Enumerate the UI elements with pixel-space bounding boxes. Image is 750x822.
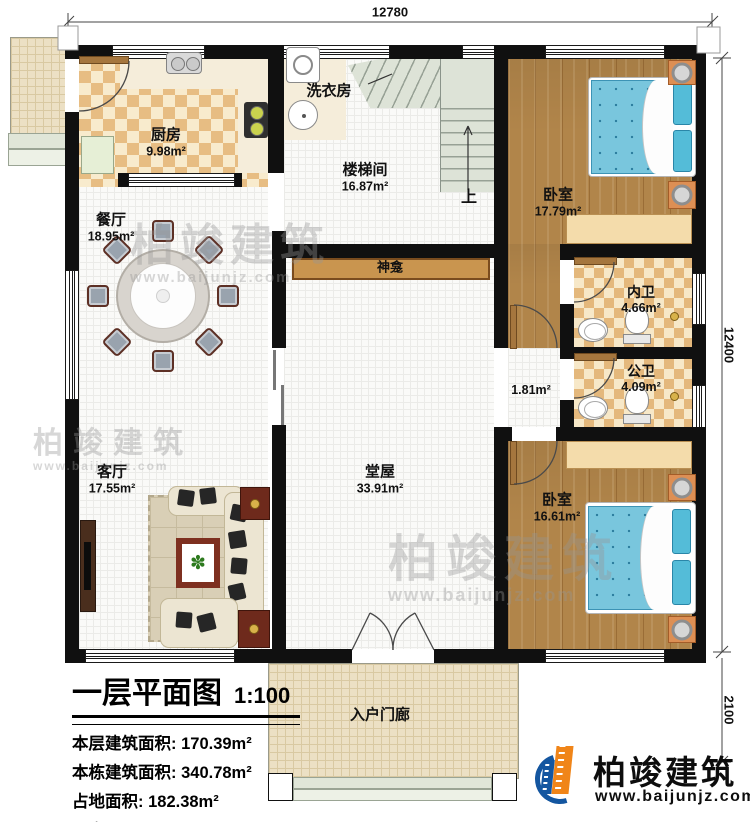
dim-value: 12400 [721, 327, 736, 363]
company-name: 柏竣建筑 [593, 746, 737, 794]
stat-row: 占地面积: 182.38m² [72, 788, 322, 812]
room-area: 16.61m² [534, 509, 581, 523]
stat-label: 本层建筑面积: [72, 735, 177, 753]
room-name: 入户门廊 [350, 708, 410, 725]
room-label-dining: 餐厅 18.95m² [88, 213, 135, 244]
corridor-area-label: 1.81m² [511, 383, 551, 397]
dim-value: 2100 [721, 696, 736, 725]
door-arc [514, 441, 557, 484]
room-name: 卧室 [534, 493, 581, 510]
dim-right-label: 12400 [721, 327, 736, 363]
stair-up-label: 上 [461, 189, 477, 207]
room-label-ensuite: 内卫 4.66m² [621, 285, 661, 315]
stat-row: 本层建筑面积: 170.39m² [72, 730, 322, 754]
stair-up-arrow [464, 126, 472, 190]
room-area: 1.81m² [511, 383, 551, 397]
room-name: 洗衣房 [306, 84, 351, 101]
room-name: 堂屋 [357, 465, 404, 482]
stat-row: 本栋建筑面积: 340.78m² [72, 759, 322, 783]
room-label-hall: 堂屋 33.91m² [357, 465, 404, 496]
room-area: 16.87m² [342, 179, 389, 193]
room-label-porch: 入户门廊 [350, 708, 410, 725]
room-name: 神龛 [377, 261, 403, 276]
room-name: 公卫 [621, 364, 661, 380]
room-label-bath: 公卫 4.09m² [621, 364, 661, 394]
company-website: www.baijunjz.com [595, 788, 750, 806]
door-arc [574, 262, 614, 302]
door-arc [79, 61, 129, 111]
dim-porch-label: 2100 [721, 696, 736, 725]
room-label-stairwell: 楼梯间 16.87m² [342, 163, 389, 194]
room-area: 4.66m² [621, 301, 661, 315]
front-door-arc [352, 613, 393, 650]
room-area: 18.95m² [88, 229, 135, 243]
door-arc [514, 305, 557, 348]
room-name: 内卫 [621, 285, 661, 301]
plan-scale: 1:100 [234, 683, 290, 709]
company-logo: 柏竣建筑 www.baijunjz.com [533, 744, 743, 814]
stat-row: 层高: 3.7m [72, 817, 322, 822]
up-text: 上 [461, 189, 477, 207]
dim-bracket [58, 26, 78, 50]
stat-value: 340.78m² [181, 764, 252, 782]
room-label-bedroom1: 卧室 17.79m² [535, 188, 582, 219]
dim-value: 12780 [372, 6, 408, 21]
room-label-kitchen: 厨房 9.98m² [146, 128, 186, 159]
room-name: 楼梯间 [342, 163, 389, 180]
stat-value: 182.38m² [148, 793, 219, 811]
door-arc [574, 358, 614, 398]
room-label-laundry: 洗衣房 [306, 84, 351, 101]
title-underline [72, 715, 300, 725]
room-area: 33.91m² [357, 481, 404, 495]
room-label-bedroom2: 卧室 16.61m² [534, 493, 581, 524]
room-name: 厨房 [146, 128, 186, 145]
floor-plan-page: ✽ [0, 0, 750, 822]
title-block: 一层平面图 1:100 本层建筑面积: 170.39m² 本栋建筑面积: 340… [72, 668, 322, 822]
front-door-arc [393, 613, 434, 650]
stat-label: 占地面积: [72, 793, 144, 811]
plan-title: 一层平面图 [72, 668, 222, 712]
room-area: 17.55m² [89, 481, 136, 495]
room-name: 餐厅 [88, 213, 135, 230]
room-area: 17.79m² [535, 204, 582, 218]
shrine-label: 神龛 [377, 261, 403, 276]
stat-value: 170.39m² [181, 735, 252, 753]
room-area: 9.98m² [146, 144, 186, 158]
room-label-living: 客厅 17.55m² [89, 465, 136, 496]
room-area: 4.09m² [621, 380, 661, 394]
stair-arrow [368, 74, 392, 84]
dim-bracket [697, 27, 720, 53]
room-name: 卧室 [535, 188, 582, 205]
stat-label: 本栋建筑面积: [72, 764, 177, 782]
room-name: 客厅 [89, 465, 136, 482]
dim-top-label: 12780 [372, 6, 408, 21]
